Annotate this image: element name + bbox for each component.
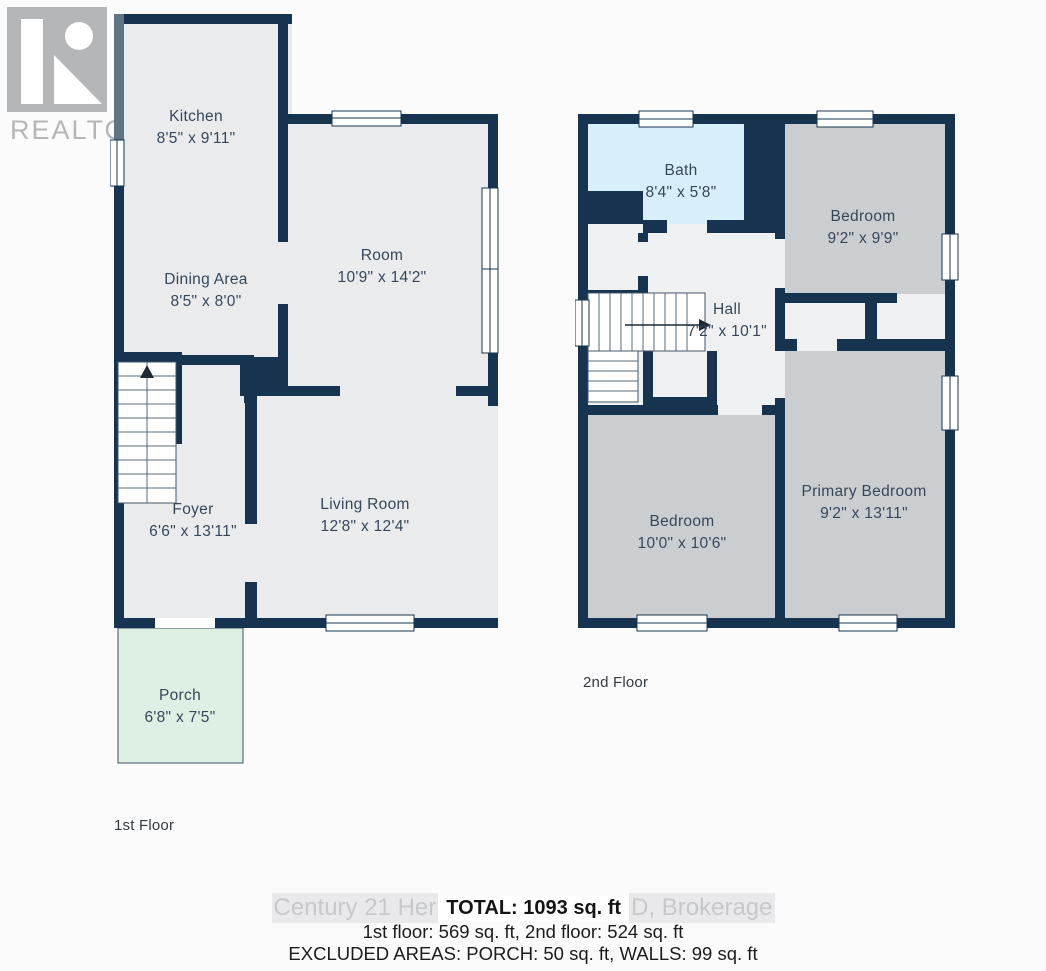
room-dims: 9'2" x 13'11" (820, 505, 908, 522)
room-name: Room (361, 247, 404, 264)
room-label-bedroom-lower: Bedroom 10'0" x 10'6" (638, 511, 727, 555)
first-floor-caption: 1st Floor (114, 817, 174, 834)
room-label-hall: Hall 7'2" x 10'1" (687, 299, 767, 343)
room-name: Kitchen (169, 108, 223, 125)
room-dims: 7'2" x 10'1" (687, 323, 767, 340)
room-dims: 10'9" x 14'2" (338, 269, 427, 286)
room-name: Primary Bedroom (801, 483, 926, 500)
room-name: Foyer (172, 501, 213, 518)
room-label-porch: Porch 6'8" x 7'5" (144, 685, 215, 729)
room-dims: 12'8" x 12'4" (321, 518, 410, 535)
room-dims: 8'5" x 9'11" (157, 130, 236, 147)
room-dims: 6'8" x 7'5" (144, 709, 215, 726)
second-floor-caption: 2nd Floor (583, 674, 648, 691)
footer-total-row: Century 21 Her TOTAL: 1093 sq. ft D, Bro… (0, 893, 1046, 923)
first-floor-stairs (118, 362, 176, 503)
brokerage-watermark-right: D, Brokerage (629, 893, 774, 923)
room-dims: 8'5" x 8'0" (170, 293, 241, 310)
excluded-areas-text: EXCLUDED AREAS: PORCH: 50 sq. ft, WALLS:… (0, 943, 1046, 965)
room-label-bedroom-upper: Bedroom 9'2" x 9'9" (827, 206, 898, 250)
room-name: Living Room (320, 496, 409, 513)
room-name: Bath (664, 162, 697, 179)
floorplan-page: REALTOR ® (0, 0, 1046, 971)
room-name: Bedroom (649, 513, 714, 530)
room-name: Bedroom (830, 208, 895, 225)
room-label-living-room: Living Room 12'8" x 12'4" (320, 494, 409, 538)
room-label-kitchen: Kitchen 8'5" x 9'11" (157, 106, 236, 150)
room-dims: 9'2" x 9'9" (827, 230, 898, 247)
room-label-room: Room 10'9" x 14'2" (338, 245, 427, 289)
room-name: Hall (713, 301, 741, 318)
room-dims: 10'0" x 10'6" (638, 535, 727, 552)
total-area-text: TOTAL: 1093 sq. ft (438, 896, 629, 921)
room-label-primary-bedroom: Primary Bedroom 9'2" x 13'11" (801, 481, 926, 525)
room-dims: 8'4" x 5'8" (645, 184, 716, 201)
room-label-foyer: Foyer 6'6" x 13'11" (149, 499, 237, 543)
second-floor-plan (575, 108, 965, 638)
brokerage-watermark-left: Century 21 Her (272, 893, 439, 923)
realtor-logo: REALTOR ® (7, 7, 107, 117)
room-name: Dining Area (164, 271, 247, 288)
realtor-logo-mark (7, 7, 107, 112)
room-dims: 6'6" x 13'11" (149, 523, 237, 540)
room-label-bath: Bath 8'4" x 5'8" (645, 160, 716, 204)
floor-areas-text: 1st floor: 569 sq. ft, 2nd floor: 524 sq… (0, 921, 1046, 943)
room-label-dining-area: Dining Area 8'5" x 8'0" (164, 269, 247, 313)
front-door-opening (155, 618, 215, 628)
room-name: Porch (159, 687, 201, 704)
